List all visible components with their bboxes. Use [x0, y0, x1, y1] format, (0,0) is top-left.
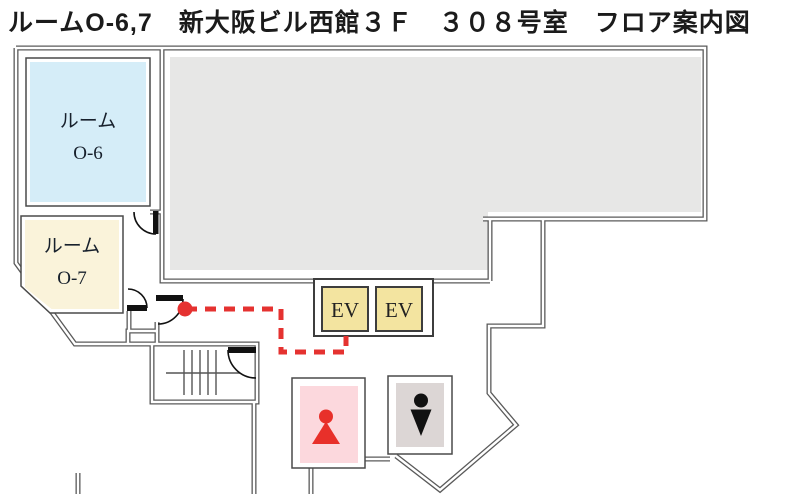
room-o7-label-line2: O-7: [57, 268, 87, 289]
male-icon-head: [414, 394, 428, 408]
floor-guide-page: ルームO-6,7 新大阪ビル西館３Ｆ ３０８号室 フロア案内図 EV EV: [0, 0, 800, 494]
route-start-dot: [178, 302, 193, 317]
door-panel-left-small: [127, 305, 147, 311]
elevator-left-label: EV: [331, 298, 359, 322]
elevator-right-label: EV: [385, 298, 413, 322]
room-o7: ルーム O-7: [21, 216, 123, 313]
room-o6-label-line1: ルーム: [60, 111, 116, 132]
door-panel-corridor-upper: [153, 211, 159, 234]
floor-plan: EV EV ルーム O-6 ルーム O-7: [0, 0, 800, 494]
room-o6: ルーム O-6: [26, 58, 150, 206]
stair-door-arc: [228, 350, 256, 378]
female-icon-head: [319, 410, 333, 424]
room-o7-inner: [25, 220, 119, 309]
door-panel-room-entrance: [156, 295, 183, 301]
male-restroom: [388, 376, 452, 454]
tenant-area: [170, 57, 701, 270]
female-restroom-inner: [300, 386, 358, 463]
elevator-hall: EV EV: [314, 279, 433, 336]
female-restroom: [292, 378, 365, 468]
door-arc-corridor-upper: [134, 212, 156, 234]
staircase: [166, 347, 256, 395]
stair-door-panel: [228, 347, 256, 353]
room-o6-inner: [30, 62, 146, 202]
room-o6-label-line2: O-6: [73, 143, 103, 164]
room-o7-label-line1: ルーム: [44, 236, 100, 257]
